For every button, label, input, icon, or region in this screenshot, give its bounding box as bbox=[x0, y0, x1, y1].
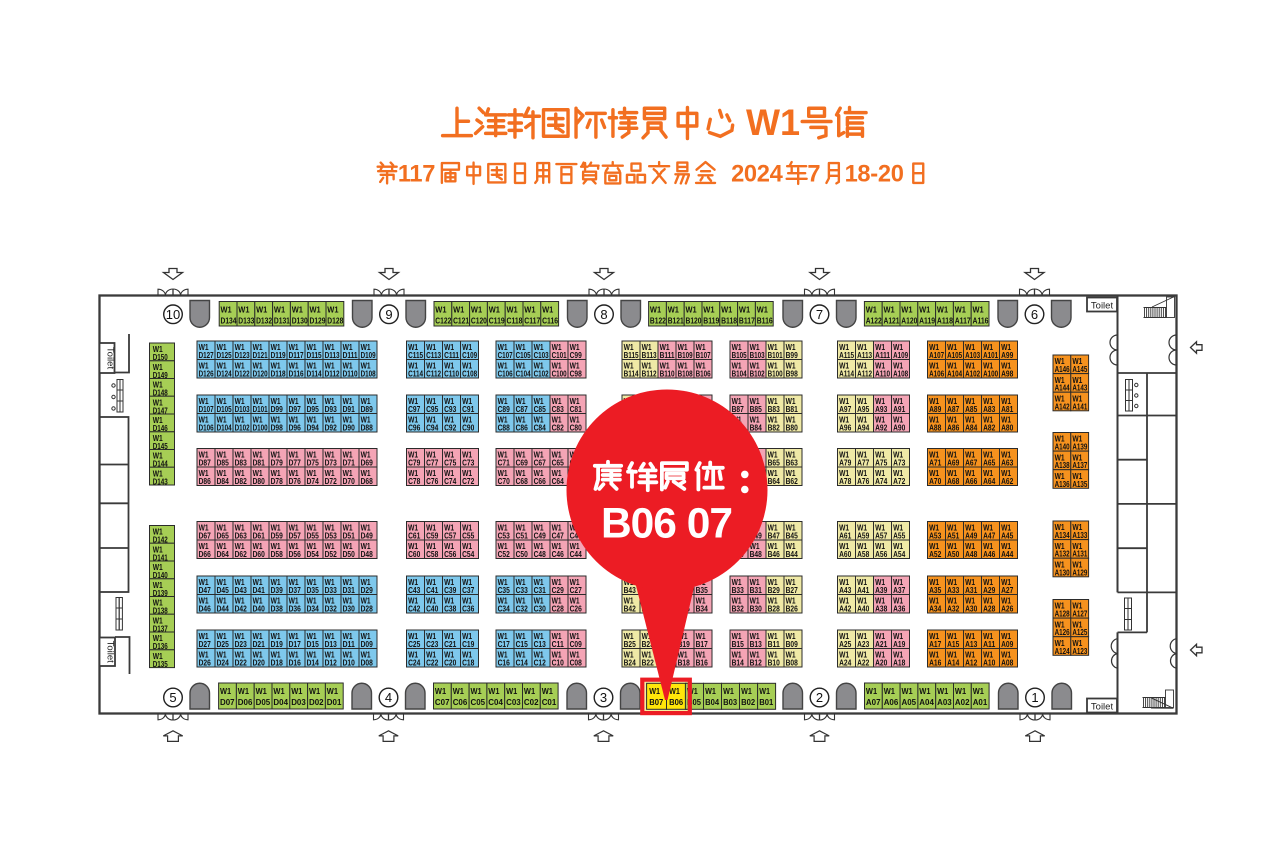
svg-text:C04: C04 bbox=[488, 697, 503, 707]
svg-text:D07: D07 bbox=[220, 697, 235, 707]
svg-text:C88: C88 bbox=[498, 424, 511, 433]
svg-text:A05: A05 bbox=[902, 697, 917, 707]
svg-text:A14: A14 bbox=[947, 659, 960, 668]
svg-text:A44: A44 bbox=[1001, 550, 1014, 559]
svg-text:W1: W1 bbox=[507, 304, 518, 314]
svg-text:D54: D54 bbox=[307, 550, 320, 559]
svg-text:B18: B18 bbox=[678, 659, 691, 668]
svg-text:C106: C106 bbox=[498, 370, 513, 379]
svg-text:D106: D106 bbox=[199, 424, 214, 433]
svg-text:C51: C51 bbox=[516, 532, 529, 541]
svg-text:D119: D119 bbox=[271, 351, 286, 360]
svg-text:A76: A76 bbox=[857, 477, 870, 486]
svg-text:D47: D47 bbox=[199, 586, 212, 595]
svg-text:B11: B11 bbox=[768, 640, 781, 649]
svg-text:A35: A35 bbox=[929, 586, 942, 595]
svg-text:A95: A95 bbox=[857, 405, 870, 414]
svg-text:A51: A51 bbox=[947, 532, 960, 541]
svg-text:B44: B44 bbox=[786, 550, 799, 559]
svg-text:A103: A103 bbox=[965, 351, 980, 360]
svg-text:B24: B24 bbox=[624, 659, 637, 668]
svg-text:A115: A115 bbox=[839, 351, 854, 360]
svg-text:C78: C78 bbox=[408, 477, 421, 486]
svg-text:D40: D40 bbox=[253, 605, 266, 614]
svg-text:A27: A27 bbox=[1001, 586, 1014, 595]
svg-text:D69: D69 bbox=[361, 459, 374, 468]
svg-text:D04: D04 bbox=[273, 697, 288, 707]
svg-text:C06: C06 bbox=[453, 697, 468, 707]
svg-text:W1: W1 bbox=[650, 304, 661, 314]
svg-text:A142: A142 bbox=[1055, 402, 1070, 411]
svg-text:A114: A114 bbox=[839, 370, 854, 379]
svg-text:A116: A116 bbox=[973, 316, 989, 326]
svg-text:D95: D95 bbox=[307, 405, 320, 414]
svg-text:A29: A29 bbox=[983, 586, 996, 595]
svg-text:D116: D116 bbox=[289, 370, 304, 379]
svg-text:A73: A73 bbox=[893, 459, 906, 468]
svg-text:A21: A21 bbox=[875, 640, 888, 649]
svg-text:A137: A137 bbox=[1072, 461, 1087, 470]
svg-text:D29: D29 bbox=[361, 586, 374, 595]
svg-text:B85: B85 bbox=[750, 405, 763, 414]
svg-text:A16: A16 bbox=[929, 659, 942, 668]
svg-text:1: 1 bbox=[1031, 690, 1038, 705]
svg-text:W1: W1 bbox=[668, 304, 679, 314]
svg-text:C32: C32 bbox=[516, 605, 529, 614]
svg-text:B09: B09 bbox=[786, 640, 799, 649]
svg-text:A04: A04 bbox=[919, 697, 934, 707]
svg-text:C44: C44 bbox=[570, 550, 583, 559]
svg-text:B14: B14 bbox=[732, 659, 745, 668]
svg-text:A92: A92 bbox=[875, 424, 888, 433]
svg-text:D42: D42 bbox=[235, 605, 248, 614]
svg-text:B65: B65 bbox=[768, 459, 781, 468]
svg-text:B31: B31 bbox=[750, 586, 763, 595]
svg-text:D97: D97 bbox=[289, 405, 302, 414]
svg-text:C50: C50 bbox=[516, 550, 529, 559]
svg-text:C105: C105 bbox=[516, 351, 531, 360]
svg-text:A32: A32 bbox=[947, 605, 960, 614]
svg-text:D34: D34 bbox=[307, 605, 320, 614]
svg-text:A36: A36 bbox=[893, 605, 906, 614]
svg-text:W1: W1 bbox=[919, 304, 930, 314]
svg-text:W1: W1 bbox=[273, 686, 284, 696]
svg-text:A64: A64 bbox=[983, 477, 996, 486]
svg-text:B15: B15 bbox=[732, 640, 745, 649]
svg-text:C23: C23 bbox=[426, 640, 439, 649]
svg-text:W1: W1 bbox=[274, 304, 285, 314]
svg-text:C13: C13 bbox=[534, 640, 547, 649]
svg-text:A96: A96 bbox=[839, 424, 852, 433]
svg-text:C34: C34 bbox=[498, 605, 511, 614]
svg-text:W1: W1 bbox=[256, 686, 267, 696]
svg-text:A67: A67 bbox=[965, 459, 978, 468]
svg-text:A54: A54 bbox=[893, 550, 906, 559]
svg-text:B104: B104 bbox=[732, 370, 747, 379]
svg-text:W1: W1 bbox=[471, 686, 482, 696]
svg-text:W1: W1 bbox=[238, 304, 249, 314]
svg-text:B105: B105 bbox=[732, 351, 747, 360]
svg-text:D10: D10 bbox=[343, 659, 356, 668]
svg-text:D94: D94 bbox=[307, 424, 320, 433]
svg-text:A24: A24 bbox=[839, 659, 852, 668]
svg-text:D100: D100 bbox=[253, 424, 268, 433]
svg-text:D127: D127 bbox=[199, 351, 214, 360]
svg-text:A121: A121 bbox=[884, 316, 900, 326]
svg-text:W1: W1 bbox=[866, 304, 877, 314]
svg-text:D135: D135 bbox=[153, 660, 168, 669]
svg-text:B34: B34 bbox=[696, 605, 709, 614]
svg-text:A94: A94 bbox=[857, 424, 870, 433]
svg-text:B113: B113 bbox=[642, 351, 657, 360]
svg-text:C91: C91 bbox=[462, 405, 475, 414]
svg-text:C22: C22 bbox=[426, 659, 439, 668]
svg-text:A100: A100 bbox=[983, 370, 998, 379]
svg-text:18-20: 18-20 bbox=[845, 160, 904, 187]
svg-text:A49: A49 bbox=[965, 532, 978, 541]
svg-text:B109: B109 bbox=[678, 351, 693, 360]
svg-text:D39: D39 bbox=[271, 586, 284, 595]
svg-text:C57: C57 bbox=[444, 532, 457, 541]
svg-text:D02: D02 bbox=[309, 697, 324, 707]
svg-text:A77: A77 bbox=[857, 459, 870, 468]
svg-text:W1: W1 bbox=[669, 686, 680, 696]
svg-text:B17: B17 bbox=[696, 640, 709, 649]
svg-text:D115: D115 bbox=[307, 351, 322, 360]
svg-text:D98: D98 bbox=[271, 424, 284, 433]
svg-text:C33: C33 bbox=[516, 586, 529, 595]
svg-text:A65: A65 bbox=[983, 459, 996, 468]
svg-text:A09: A09 bbox=[1001, 640, 1014, 649]
svg-text:8: 8 bbox=[600, 307, 607, 322]
svg-text:A93: A93 bbox=[875, 405, 888, 414]
svg-text:C93: C93 bbox=[444, 405, 457, 414]
svg-text:C86: C86 bbox=[516, 424, 529, 433]
svg-text:C109: C109 bbox=[462, 351, 477, 360]
svg-text:B82: B82 bbox=[768, 424, 781, 433]
svg-text:Toilet: Toilet bbox=[105, 641, 116, 664]
svg-text:D73: D73 bbox=[325, 459, 338, 468]
svg-text:A13: A13 bbox=[965, 640, 978, 649]
svg-text:D72: D72 bbox=[325, 477, 338, 486]
svg-text:A56: A56 bbox=[875, 550, 888, 559]
svg-text:D85: D85 bbox=[217, 459, 230, 468]
svg-text:B48: B48 bbox=[750, 550, 763, 559]
svg-text:C74: C74 bbox=[444, 477, 457, 486]
svg-text:C37: C37 bbox=[462, 586, 475, 595]
svg-text:B45: B45 bbox=[786, 532, 799, 541]
svg-text:W1: W1 bbox=[901, 304, 912, 314]
svg-text:A136: A136 bbox=[1055, 480, 1070, 489]
svg-text:C101: C101 bbox=[552, 351, 567, 360]
svg-text:D11: D11 bbox=[343, 640, 356, 649]
svg-text:Toilet: Toilet bbox=[1091, 300, 1114, 311]
svg-text:C87: C87 bbox=[516, 405, 529, 414]
svg-text:D77: D77 bbox=[289, 459, 302, 468]
svg-text:C72: C72 bbox=[462, 477, 475, 486]
svg-text:C95: C95 bbox=[426, 405, 439, 414]
svg-text:D16: D16 bbox=[289, 659, 302, 668]
svg-text:A25: A25 bbox=[839, 640, 852, 649]
svg-text:A72: A72 bbox=[893, 477, 906, 486]
svg-text:C97: C97 bbox=[408, 405, 421, 414]
svg-text:W1: W1 bbox=[902, 686, 913, 696]
svg-text:C83: C83 bbox=[552, 405, 565, 414]
svg-text:C103: C103 bbox=[534, 351, 549, 360]
svg-text:C104: C104 bbox=[516, 370, 531, 379]
svg-text:D17: D17 bbox=[289, 640, 302, 649]
svg-text:C102: C102 bbox=[534, 370, 549, 379]
svg-text:A69: A69 bbox=[947, 459, 960, 468]
svg-text:A33: A33 bbox=[947, 586, 960, 595]
svg-text:C116: C116 bbox=[542, 316, 558, 326]
svg-text:D50: D50 bbox=[343, 550, 356, 559]
svg-text:A48: A48 bbox=[965, 550, 978, 559]
svg-text:D57: D57 bbox=[289, 532, 302, 541]
svg-text:W1: W1 bbox=[884, 304, 895, 314]
svg-text:C79: C79 bbox=[408, 459, 421, 468]
svg-text:D87: D87 bbox=[199, 459, 212, 468]
svg-text:A39: A39 bbox=[875, 586, 888, 595]
svg-text:C66: C66 bbox=[534, 477, 547, 486]
svg-text:C01: C01 bbox=[542, 697, 557, 707]
svg-text:A34: A34 bbox=[929, 605, 942, 614]
svg-text:A80: A80 bbox=[1001, 424, 1014, 433]
svg-text:D43: D43 bbox=[235, 586, 248, 595]
svg-text:B16: B16 bbox=[696, 659, 709, 668]
svg-text:C40: C40 bbox=[426, 605, 439, 614]
svg-text:C20: C20 bbox=[444, 659, 457, 668]
svg-text:C77: C77 bbox=[426, 459, 439, 468]
svg-text:D03: D03 bbox=[291, 697, 306, 707]
svg-text:7: 7 bbox=[807, 160, 820, 187]
svg-text:C02: C02 bbox=[524, 697, 539, 707]
svg-text:B10: B10 bbox=[768, 659, 781, 668]
svg-text:A97: A97 bbox=[839, 405, 852, 414]
svg-text:A40: A40 bbox=[857, 605, 870, 614]
svg-text:2024: 2024 bbox=[731, 160, 784, 187]
svg-text:C98: C98 bbox=[570, 370, 583, 379]
svg-text:D48: D48 bbox=[361, 550, 374, 559]
svg-text:A74: A74 bbox=[875, 477, 888, 486]
svg-text:C24: C24 bbox=[408, 659, 421, 668]
svg-text:C18: C18 bbox=[462, 659, 475, 668]
svg-text:D84: D84 bbox=[217, 477, 230, 486]
svg-text:A118: A118 bbox=[937, 316, 953, 326]
svg-text:C110: C110 bbox=[444, 370, 459, 379]
svg-text:A85: A85 bbox=[965, 405, 978, 414]
svg-text:C69: C69 bbox=[516, 459, 529, 468]
svg-text:W1: W1 bbox=[937, 686, 948, 696]
svg-text:A55: A55 bbox=[893, 532, 906, 541]
svg-text:D79: D79 bbox=[271, 459, 284, 468]
svg-text:A145: A145 bbox=[1072, 365, 1087, 374]
svg-text:D18: D18 bbox=[271, 659, 284, 668]
svg-text:W1: W1 bbox=[937, 304, 948, 314]
svg-text:W1: W1 bbox=[973, 304, 984, 314]
svg-text:B13: B13 bbox=[750, 640, 763, 649]
svg-text:D61: D61 bbox=[253, 532, 266, 541]
svg-text:A02: A02 bbox=[955, 697, 970, 707]
svg-text:W1: W1 bbox=[310, 304, 321, 314]
svg-text:B106: B106 bbox=[696, 370, 711, 379]
svg-text:C42: C42 bbox=[408, 605, 421, 614]
svg-text:C26: C26 bbox=[570, 605, 583, 614]
svg-text:B111: B111 bbox=[660, 351, 675, 360]
svg-text:A03: A03 bbox=[937, 697, 952, 707]
svg-text:B12: B12 bbox=[750, 659, 763, 668]
svg-text:W1: W1 bbox=[256, 304, 267, 314]
svg-text:W1: W1 bbox=[884, 686, 895, 696]
svg-text:B101: B101 bbox=[768, 351, 783, 360]
svg-text:A31: A31 bbox=[965, 586, 978, 595]
svg-text:B32: B32 bbox=[732, 605, 745, 614]
svg-text:C82: C82 bbox=[552, 424, 565, 433]
svg-text:D110: D110 bbox=[343, 370, 358, 379]
svg-text:C55: C55 bbox=[462, 532, 475, 541]
svg-text:D102: D102 bbox=[235, 424, 250, 433]
svg-text:D83: D83 bbox=[235, 459, 248, 468]
svg-text:D113: D113 bbox=[325, 351, 340, 360]
svg-text:D67: D67 bbox=[199, 532, 212, 541]
svg-text:B47: B47 bbox=[768, 532, 781, 541]
svg-text:B117: B117 bbox=[739, 316, 755, 326]
svg-text:A110: A110 bbox=[875, 370, 890, 379]
svg-text:W1: W1 bbox=[649, 686, 660, 696]
svg-text:5: 5 bbox=[169, 690, 176, 705]
svg-text:D103: D103 bbox=[235, 405, 250, 414]
svg-text:D26: D26 bbox=[199, 659, 212, 668]
svg-text:C64: C64 bbox=[552, 477, 565, 486]
svg-text:C14: C14 bbox=[516, 659, 529, 668]
svg-text:W1: W1 bbox=[488, 686, 499, 696]
svg-text:A102: A102 bbox=[965, 370, 980, 379]
svg-text:C56: C56 bbox=[444, 550, 457, 559]
svg-text:D112: D112 bbox=[325, 370, 340, 379]
svg-text:C10: C10 bbox=[552, 659, 565, 668]
svg-text:A63: A63 bbox=[1001, 459, 1014, 468]
svg-text:D33: D33 bbox=[325, 586, 338, 595]
svg-text:C29: C29 bbox=[552, 586, 565, 595]
svg-text:D37: D37 bbox=[289, 586, 302, 595]
svg-text:D122: D122 bbox=[235, 370, 250, 379]
svg-text:C71: C71 bbox=[498, 459, 511, 468]
svg-text:C92: C92 bbox=[444, 424, 457, 433]
svg-text:C46: C46 bbox=[552, 550, 565, 559]
svg-text:C54: C54 bbox=[462, 550, 475, 559]
svg-text:A128: A128 bbox=[1055, 610, 1070, 619]
svg-text:W1: W1 bbox=[489, 304, 500, 314]
svg-text:A108: A108 bbox=[893, 370, 908, 379]
svg-text:C27: C27 bbox=[570, 586, 583, 595]
svg-text:W1: W1 bbox=[686, 304, 697, 314]
svg-text:D59: D59 bbox=[271, 532, 284, 541]
svg-text:A98: A98 bbox=[1001, 370, 1014, 379]
svg-text:D38: D38 bbox=[271, 605, 284, 614]
svg-text:B25: B25 bbox=[624, 640, 637, 649]
svg-text:W1: W1 bbox=[721, 304, 732, 314]
svg-text:C12: C12 bbox=[534, 659, 547, 668]
svg-text:A60: A60 bbox=[839, 550, 852, 559]
svg-text:10: 10 bbox=[166, 307, 180, 322]
svg-text:A57: A57 bbox=[875, 532, 888, 541]
svg-text:B64: B64 bbox=[768, 477, 781, 486]
svg-text:W1: W1 bbox=[524, 686, 535, 696]
svg-text:W1: W1 bbox=[757, 304, 768, 314]
svg-text:D63: D63 bbox=[235, 532, 248, 541]
svg-text:W1: W1 bbox=[453, 686, 464, 696]
svg-text:W1: W1 bbox=[741, 686, 752, 696]
svg-text:D28: D28 bbox=[361, 605, 374, 614]
svg-text:W1: W1 bbox=[524, 304, 535, 314]
svg-text:A68: A68 bbox=[947, 477, 960, 486]
svg-text:A61: A61 bbox=[839, 532, 852, 541]
svg-text:B118: B118 bbox=[721, 316, 737, 326]
svg-text:B115: B115 bbox=[624, 351, 639, 360]
svg-text:A37: A37 bbox=[893, 586, 906, 595]
svg-text:C31: C31 bbox=[534, 586, 547, 595]
svg-text:A83: A83 bbox=[983, 405, 996, 414]
svg-text:A43: A43 bbox=[839, 586, 852, 595]
svg-text:D78: D78 bbox=[271, 477, 284, 486]
svg-text:C16: C16 bbox=[498, 659, 511, 668]
svg-text:D25: D25 bbox=[217, 640, 230, 649]
svg-text:C118: C118 bbox=[507, 316, 523, 326]
svg-text:A135: A135 bbox=[1072, 480, 1087, 489]
svg-text:B107: B107 bbox=[696, 351, 711, 360]
svg-text:2: 2 bbox=[816, 690, 823, 705]
svg-text:C59: C59 bbox=[426, 532, 439, 541]
svg-text:C47: C47 bbox=[552, 532, 565, 541]
svg-text:C60: C60 bbox=[408, 550, 421, 559]
svg-text:Toilet: Toilet bbox=[1091, 701, 1114, 712]
svg-text:D129: D129 bbox=[310, 316, 326, 326]
svg-text:A81: A81 bbox=[1001, 405, 1014, 414]
svg-text:D51: D51 bbox=[343, 532, 356, 541]
svg-text:B112: B112 bbox=[642, 370, 657, 379]
svg-text:A91: A91 bbox=[893, 405, 906, 414]
svg-text:W1: W1 bbox=[506, 686, 517, 696]
svg-text:D124: D124 bbox=[217, 370, 232, 379]
svg-text:D62: D62 bbox=[235, 550, 248, 559]
svg-text:C111: C111 bbox=[444, 351, 459, 360]
svg-text:W1: W1 bbox=[919, 686, 930, 696]
svg-text:C120: C120 bbox=[471, 316, 487, 326]
svg-text:D05: D05 bbox=[256, 697, 271, 707]
svg-text:A106: A106 bbox=[929, 370, 944, 379]
svg-text:B46: B46 bbox=[768, 550, 781, 559]
svg-text:C49: C49 bbox=[534, 532, 547, 541]
svg-text:D91: D91 bbox=[343, 405, 356, 414]
svg-text:B42: B42 bbox=[624, 605, 637, 614]
svg-text:D105: D105 bbox=[217, 405, 232, 414]
svg-text:C121: C121 bbox=[453, 316, 469, 326]
svg-text:D109: D109 bbox=[361, 351, 376, 360]
svg-text:A17: A17 bbox=[929, 640, 942, 649]
svg-text:B03: B03 bbox=[723, 697, 737, 707]
svg-text:W1: W1 bbox=[453, 304, 464, 314]
svg-text:A53: A53 bbox=[929, 532, 942, 541]
svg-text:C90: C90 bbox=[462, 424, 475, 433]
svg-text:W1: W1 bbox=[435, 686, 446, 696]
svg-text:A146: A146 bbox=[1055, 365, 1070, 374]
svg-text:A10: A10 bbox=[983, 659, 996, 668]
svg-text:C41: C41 bbox=[426, 586, 439, 595]
svg-text:B63: B63 bbox=[786, 459, 799, 468]
svg-text:B108: B108 bbox=[678, 370, 693, 379]
svg-text:6: 6 bbox=[1031, 307, 1038, 322]
svg-text:C112: C112 bbox=[426, 370, 441, 379]
